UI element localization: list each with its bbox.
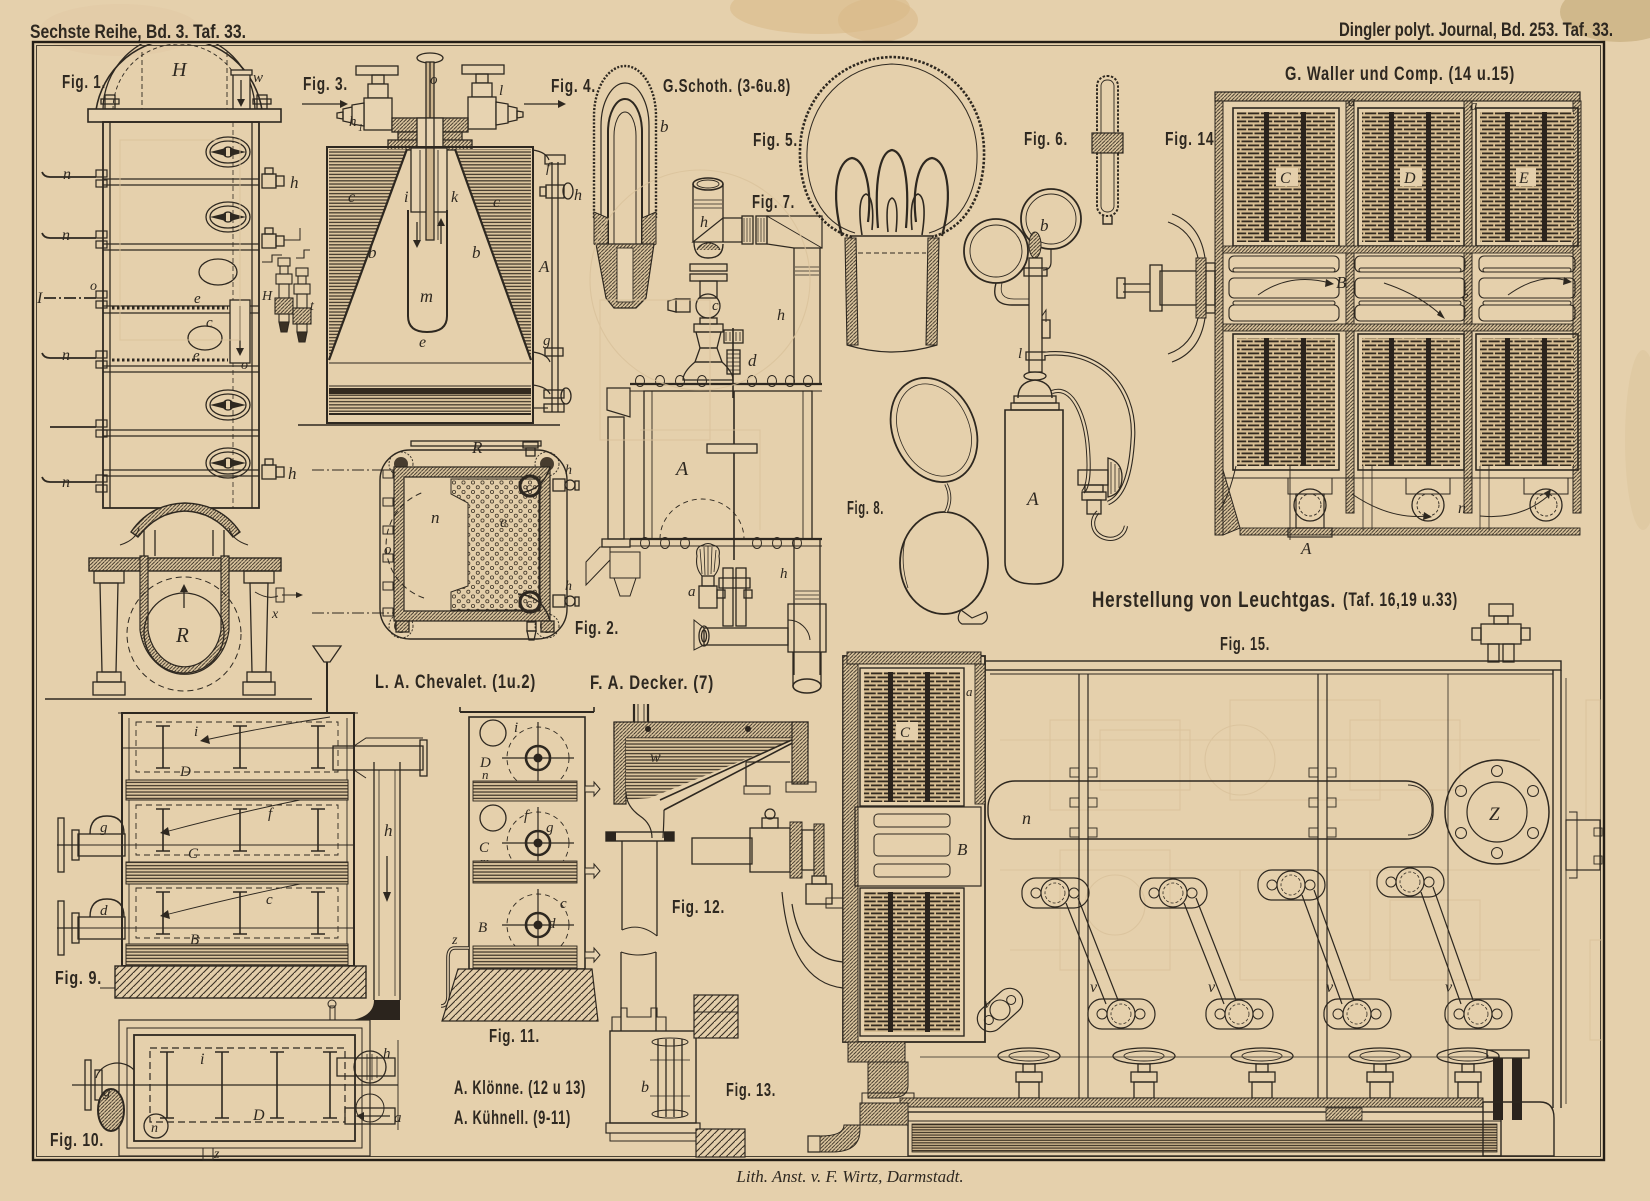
svg-text:H: H [261, 289, 273, 304]
svg-text:z: z [451, 933, 458, 948]
svg-text:C: C [188, 846, 199, 862]
svg-text:o: o [241, 358, 248, 373]
svg-text:g: g [103, 1084, 111, 1100]
svg-text:n: n [151, 1121, 158, 1136]
svg-text:A: A [674, 458, 689, 480]
svg-text:c: c [348, 189, 355, 206]
svg-text:b: b [472, 243, 481, 262]
svg-text:b: b [641, 1079, 649, 1096]
svg-text:z: z [213, 1147, 220, 1162]
svg-text:w: w [253, 70, 263, 86]
svg-text:Fig. 4.: Fig. 4. [551, 76, 596, 96]
svg-text:e: e [1462, 289, 1469, 305]
svg-text:B: B [478, 920, 487, 936]
svg-text:Fig. 13.: Fig. 13. [726, 1080, 776, 1100]
svg-text:o: o [384, 542, 392, 558]
svg-text:Fig. 6.: Fig. 6. [1024, 129, 1068, 149]
svg-text:B: B [1336, 273, 1347, 292]
svg-text:D: D [252, 1107, 265, 1124]
svg-text:g: g [546, 820, 554, 836]
svg-text:R: R [471, 438, 483, 457]
svg-text:n: n [63, 166, 71, 183]
svg-text:n: n [431, 508, 440, 527]
svg-text:v: v [1445, 979, 1453, 996]
svg-text:i: i [514, 720, 518, 736]
svg-text:c: c [712, 298, 719, 314]
svg-text:x: x [271, 607, 279, 622]
svg-text:Fig. 12.: Fig. 12. [672, 897, 725, 917]
svg-text:G.Schoth. (3-6u.8): G.Schoth. (3-6u.8) [663, 76, 791, 96]
svg-text:a: a [1348, 94, 1356, 110]
svg-text:R: R [175, 623, 189, 647]
svg-text:v: v [1208, 979, 1216, 996]
svg-text:Fig. 15.: Fig. 15. [1220, 634, 1270, 654]
svg-text:d: d [548, 916, 556, 932]
svg-text:c: c [266, 892, 273, 908]
svg-text:n: n [482, 767, 489, 782]
svg-text:i: i [404, 189, 408, 206]
svg-text:l: l [1018, 346, 1022, 362]
svg-text:h: h [565, 579, 572, 594]
svg-text:g: g [100, 820, 108, 836]
svg-text:Dingler polyt. Journal, Bd. 25: Dingler polyt. Journal, Bd. 253. Taf. 33… [1339, 20, 1613, 41]
svg-text:k: k [451, 189, 459, 206]
svg-text:A: A [538, 257, 550, 276]
svg-text:Herstellung von Leuchtgas.: Herstellung von Leuchtgas. [1092, 587, 1336, 612]
svg-text:n: n [62, 347, 70, 364]
svg-text:v: v [984, 996, 991, 1012]
svg-text:(Taf. 16,19 u.33): (Taf. 16,19 u.33) [1343, 590, 1458, 611]
svg-text:Fig. 2.: Fig. 2. [575, 618, 619, 638]
svg-text:e: e [500, 514, 507, 531]
svg-text:G. Waller und Comp. (14 u.15): G. Waller und Comp. (14 u.15) [1285, 64, 1515, 85]
svg-text:c: c [493, 194, 500, 211]
svg-text:A. Klönne. (12 u 13): A. Klönne. (12 u 13) [454, 1078, 586, 1099]
svg-text:l: l [499, 83, 503, 99]
svg-text:m: m [420, 286, 433, 306]
svg-text:i: i [194, 724, 198, 740]
svg-text:h: h [349, 114, 357, 130]
svg-text:C: C [900, 725, 911, 741]
svg-text:Fig. 14.: Fig. 14. [1165, 129, 1219, 149]
svg-text:n: n [1022, 808, 1031, 828]
svg-text:g: g [543, 333, 551, 349]
svg-text:e: e [194, 291, 201, 307]
svg-text:Fig. 5.: Fig. 5. [753, 130, 798, 150]
svg-text:Fig. 8.: Fig. 8. [847, 498, 884, 518]
svg-text:Sechste Reihe, Bd. 3. Taf. 33.: Sechste Reihe, Bd. 3. Taf. 33. [30, 22, 246, 43]
svg-text:v: v [1326, 979, 1334, 996]
svg-text:n: n [1458, 500, 1466, 517]
svg-text:w: w [650, 749, 661, 766]
svg-text:h: h [565, 463, 572, 478]
svg-text:Fig. 11.: Fig. 11. [489, 1026, 540, 1046]
svg-text:F. A. Decker. (7): F. A. Decker. (7) [590, 673, 714, 694]
svg-text:e: e [419, 334, 426, 351]
svg-text:Fig. 3.: Fig. 3. [303, 74, 348, 94]
svg-text:D: D [1403, 170, 1416, 187]
svg-text:1: 1 [358, 123, 363, 134]
svg-text:i: i [200, 1051, 204, 1068]
svg-text:Fig. 7.: Fig. 7. [752, 192, 795, 212]
svg-text:d: d [100, 903, 108, 919]
svg-text:h: h [384, 821, 393, 840]
svg-text:L. A. Chevalet. (1u.2): L. A. Chevalet. (1u.2) [375, 672, 536, 693]
svg-text:C: C [1280, 170, 1291, 187]
svg-text:h: h [288, 464, 297, 483]
svg-text:h: h [700, 214, 708, 231]
svg-text:A: A [1300, 539, 1312, 558]
svg-text:A. Kühnell. (9-11): A. Kühnell. (9-11) [454, 1108, 571, 1129]
svg-text:A: A [1025, 489, 1039, 510]
svg-text:b: b [660, 117, 669, 136]
svg-text:H: H [171, 59, 188, 81]
svg-text:e: e [193, 348, 200, 364]
svg-text:a: a [1470, 98, 1478, 114]
svg-text:n: n [62, 474, 70, 491]
svg-text:a: a [966, 684, 973, 699]
svg-text:n: n [62, 227, 70, 244]
svg-text:d: d [748, 351, 757, 370]
svg-text:v: v [1090, 979, 1098, 996]
svg-text:c: c [206, 315, 213, 331]
svg-text:E: E [1518, 170, 1529, 187]
svg-text:o: o [430, 72, 438, 88]
svg-text:h: h [290, 173, 299, 192]
svg-text:h: h [780, 566, 788, 582]
svg-text:b: b [368, 243, 377, 262]
svg-text:Fig. 9.: Fig. 9. [55, 968, 102, 988]
svg-text:b: b [1040, 216, 1049, 235]
svg-text:h: h [574, 187, 582, 204]
svg-text:B: B [957, 840, 968, 859]
svg-text:c: c [560, 896, 567, 912]
svg-text:Z: Z [1489, 804, 1500, 825]
svg-text:Lith. Anst. v. F. Wirtz, Darms: Lith. Anst. v. F. Wirtz, Darmstadt. [735, 1167, 963, 1186]
svg-text:h: h [777, 307, 785, 324]
svg-text:h: h [383, 1046, 391, 1062]
svg-text:D: D [179, 764, 191, 780]
svg-text:a: a [688, 584, 696, 600]
svg-text:Fig. 1.: Fig. 1. [62, 72, 106, 92]
svg-text:o: o [90, 279, 97, 294]
svg-text:Fig. 10.: Fig. 10. [50, 1130, 104, 1150]
svg-text:I: I [36, 290, 43, 307]
